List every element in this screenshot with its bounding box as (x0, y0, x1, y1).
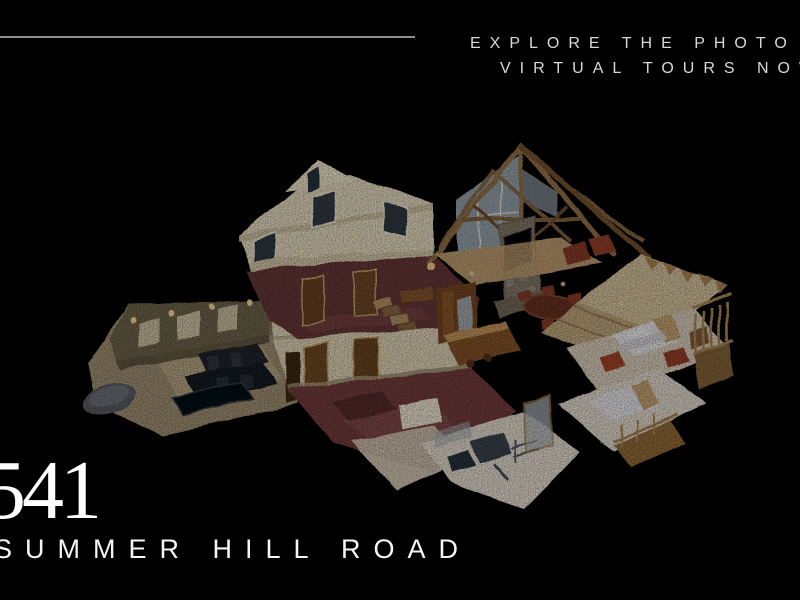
address-number: 541 (0, 449, 98, 533)
address-street: SUMMER HILL ROAD (0, 536, 471, 563)
promo-page: EXPLORE THE PHOTO & VIRTUAL TOURS NOW (0, 0, 800, 600)
bedroom-wing (541, 253, 732, 466)
dollhouse-3d-image (0, 0, 800, 600)
dollhouse-3d-view[interactable] (0, 0, 800, 600)
